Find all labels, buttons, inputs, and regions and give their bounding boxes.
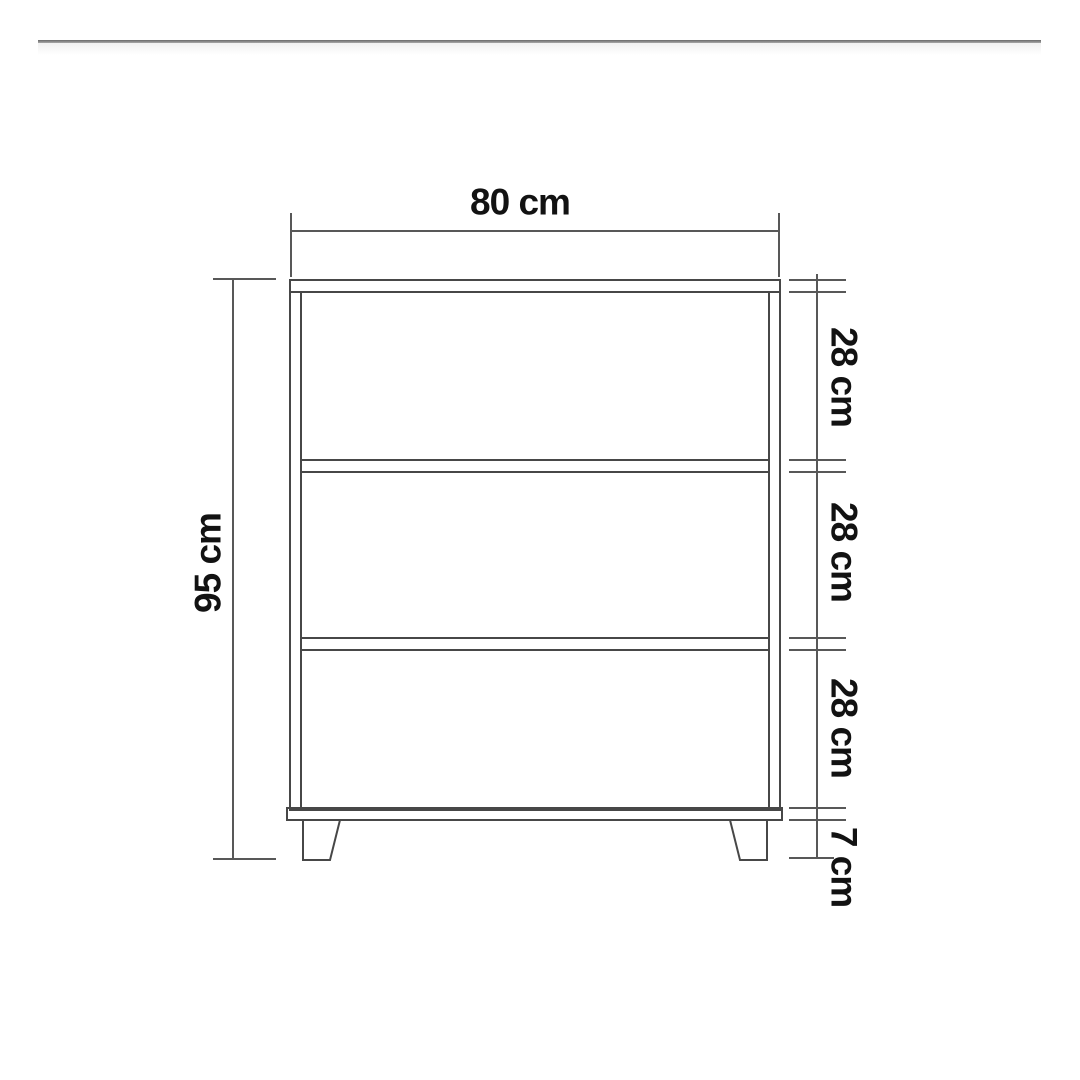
cabinet-right-leg	[730, 820, 767, 860]
cabinet-left-leg	[303, 820, 340, 860]
cabinet-line-drawing	[0, 0, 1080, 1080]
shelf-section-label-3: 28 cm	[826, 678, 863, 778]
cabinet-shelf-2	[301, 638, 769, 650]
shelf-section-label-2: 28 cm	[826, 502, 863, 602]
furniture-dimension-diagram: 80 cm 95 cm 28 cm 28 cm 28 cm 7 cm	[0, 0, 1080, 1080]
width-dimension-label: 80 cm	[470, 184, 570, 221]
cabinet	[287, 280, 782, 860]
cabinet-shelf-1	[301, 460, 769, 472]
cabinet-outline	[290, 280, 780, 810]
shelf-section-label-1: 28 cm	[826, 327, 863, 427]
leg-height-label: 7 cm	[826, 827, 863, 907]
dimension-lines	[213, 213, 846, 859]
height-dimension-label: 95 cm	[190, 513, 227, 613]
